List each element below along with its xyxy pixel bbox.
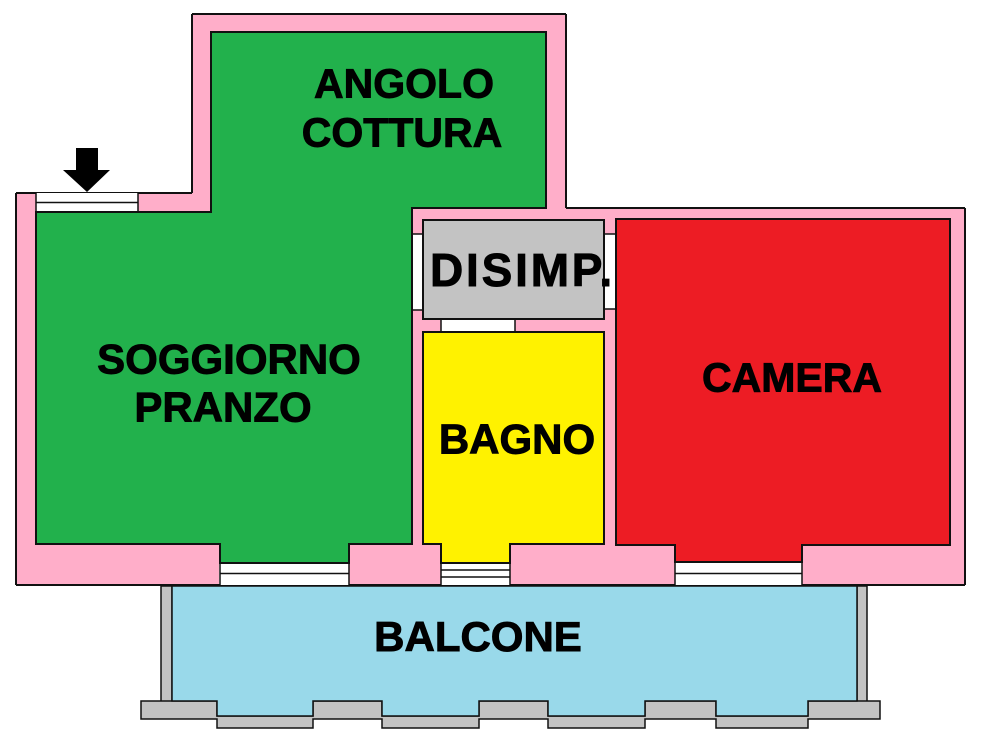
svg-text:COTTURA: COTTURA bbox=[302, 110, 502, 156]
svg-text:BAGNO: BAGNO bbox=[439, 416, 595, 463]
svg-text:PRANZO: PRANZO bbox=[134, 384, 311, 431]
svg-text:SOGGIORNO: SOGGIORNO bbox=[97, 336, 361, 383]
svg-text:ANGOLO: ANGOLO bbox=[314, 61, 494, 107]
svg-text:BALCONE: BALCONE bbox=[374, 613, 582, 660]
svg-text:CAMERA: CAMERA bbox=[702, 355, 882, 401]
svg-text:DISIMP.: DISIMP. bbox=[430, 244, 615, 296]
